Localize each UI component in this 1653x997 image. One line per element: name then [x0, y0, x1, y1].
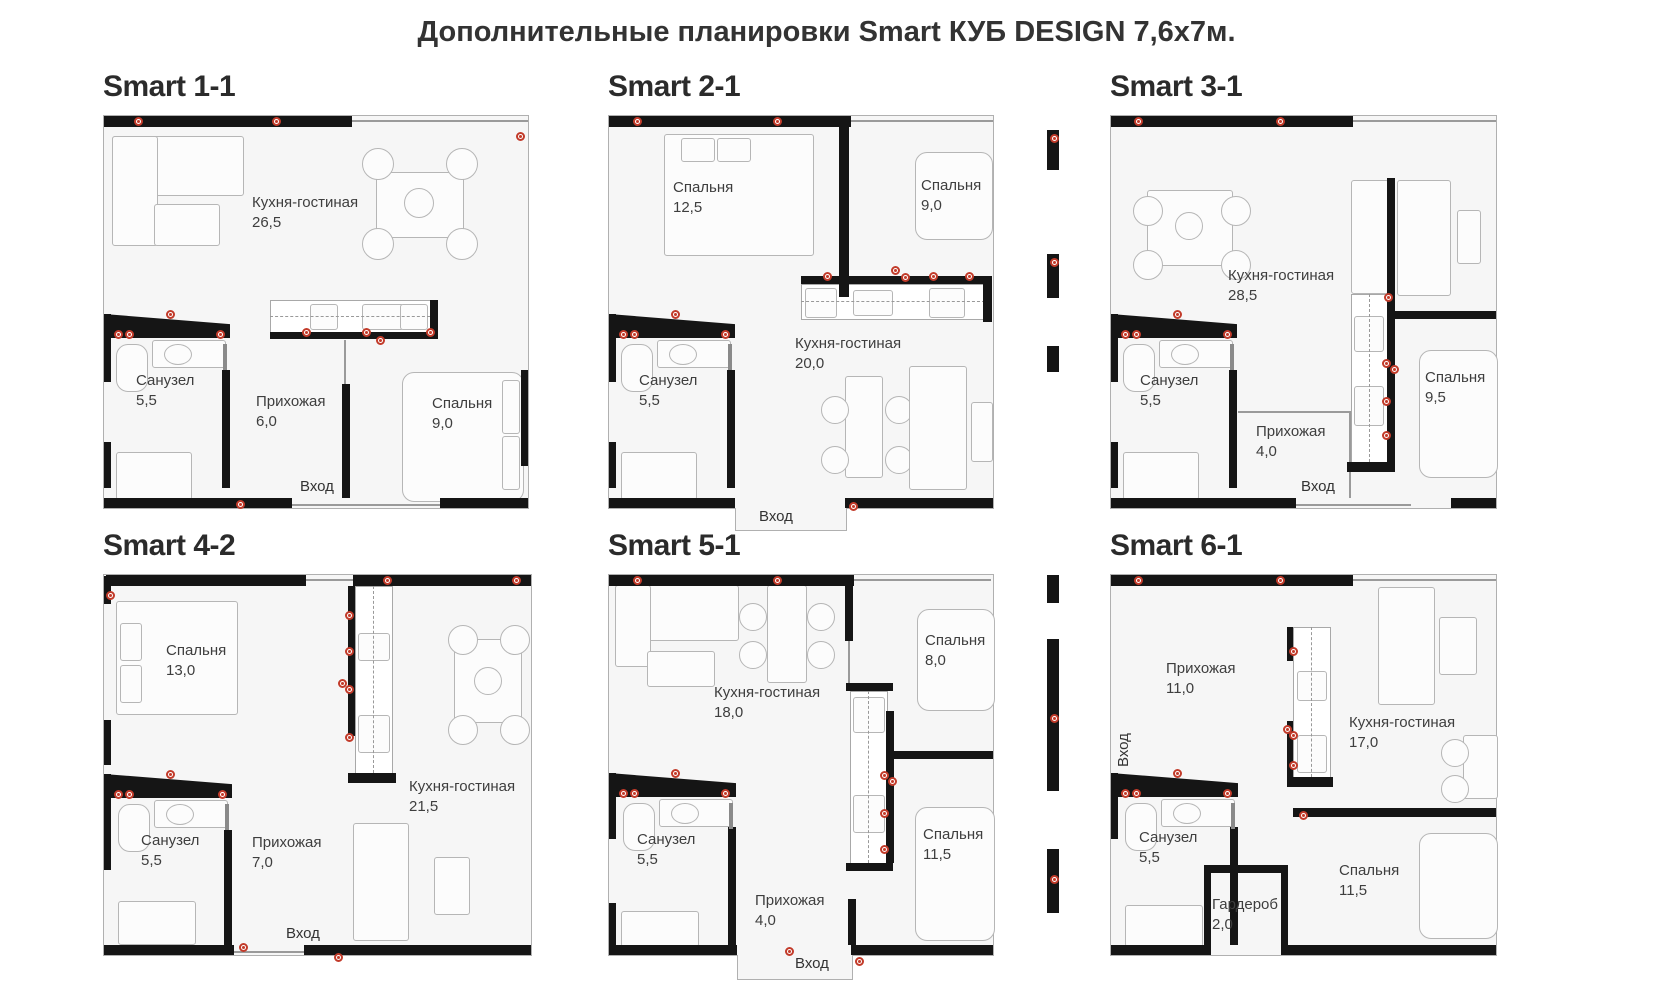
kitchen-sink — [362, 304, 404, 330]
socket-icon — [630, 789, 639, 798]
wall — [1287, 777, 1333, 787]
counter-dash — [801, 301, 985, 302]
socket-icon — [376, 336, 385, 345]
chair — [448, 715, 478, 745]
wall — [609, 773, 616, 839]
floor-plan-smart-4-2: Спальня 13,0 Кухня-гостиная 21,5 Санузел… — [103, 574, 532, 956]
socket-icon — [849, 502, 858, 511]
socket-icon — [166, 770, 175, 779]
chair — [1221, 196, 1251, 226]
cooktop — [400, 304, 428, 330]
socket-icon — [334, 953, 343, 962]
cooktop — [1297, 735, 1327, 773]
threshold-line — [292, 504, 440, 506]
pillow — [717, 138, 751, 162]
dishwasher — [310, 304, 338, 330]
wall — [104, 498, 292, 508]
chair — [739, 603, 767, 631]
kitchen-sink — [853, 697, 885, 733]
chair — [807, 603, 835, 631]
partition-line — [344, 340, 346, 384]
socket-icon — [633, 117, 642, 126]
socket-icon — [1173, 769, 1182, 778]
dining-table — [845, 376, 883, 478]
plan-title-smart-1-1: Smart 1-1 — [103, 70, 235, 104]
counter-dash — [868, 691, 869, 863]
room-label-bathroom: Санузел 5,5 — [141, 831, 199, 870]
fridge — [805, 288, 837, 318]
socket-icon — [125, 790, 134, 799]
chair — [1133, 250, 1163, 280]
room-area: 11,0 — [1166, 679, 1236, 699]
room-name: Прихожая — [1166, 659, 1236, 679]
socket-icon — [880, 809, 889, 818]
wall — [851, 945, 993, 955]
wall — [846, 863, 893, 871]
chair — [446, 148, 478, 180]
wall — [106, 575, 306, 586]
sofa — [1378, 587, 1435, 705]
entrance-label: Вход — [1301, 478, 1335, 495]
sofa-chaise — [112, 136, 158, 246]
chair — [362, 148, 394, 180]
room-label-bedroom: Спальня 9,5 — [1425, 368, 1485, 407]
entrance-label: Вход — [1115, 719, 1132, 767]
tv-stand — [1439, 617, 1477, 675]
floor-plan-smart-5-1: Кухня-гостиная 18,0 Спальня 8,0 Санузел … — [608, 574, 994, 956]
socket-icon — [114, 790, 123, 799]
dining-table — [767, 585, 807, 683]
room-name: Санузел — [639, 371, 697, 391]
socket-icon — [1276, 576, 1285, 585]
socket-icon — [823, 272, 832, 281]
socket-icon — [671, 310, 680, 319]
socket-icon — [345, 733, 354, 742]
socket-icon — [1390, 365, 1399, 374]
wall — [848, 899, 856, 945]
floor-plan-smart-3-1: Кухня-гостиная 28,5 Санузел 5,5 Прихожая… — [1110, 115, 1497, 509]
chair — [1133, 196, 1163, 226]
room-label-hallway: Прихожая 7,0 — [252, 833, 322, 872]
socket-icon — [888, 777, 897, 786]
basin — [1173, 803, 1201, 824]
room-area: 4,0 — [1256, 442, 1326, 462]
socket-icon — [965, 272, 974, 281]
socket-icon — [721, 789, 730, 798]
socket-icon — [671, 769, 680, 778]
room-name: Санузел — [141, 831, 199, 851]
washing-machine — [621, 452, 697, 500]
washing-machine — [621, 911, 699, 947]
socket-icon — [1050, 134, 1059, 143]
room-name: Кухня-гостиная — [1228, 266, 1334, 286]
room-name: Кухня-гостиная — [1349, 713, 1455, 733]
plate — [404, 188, 434, 218]
room-area: 21,5 — [409, 797, 515, 817]
room-label-bathroom: Санузел 5,5 — [1139, 828, 1197, 867]
wall — [1111, 498, 1296, 508]
socket-icon — [1134, 117, 1143, 126]
socket-icon — [362, 328, 371, 337]
socket-icon — [1132, 330, 1141, 339]
wall — [609, 945, 737, 955]
bed — [1419, 833, 1498, 939]
chair — [807, 641, 835, 669]
chair — [362, 228, 394, 260]
room-label-bedroom: Спальня 11,5 — [1339, 861, 1399, 900]
wall — [440, 498, 528, 508]
wall — [1229, 370, 1237, 488]
socket-icon — [1289, 731, 1298, 740]
entrance-label: Вход — [286, 925, 320, 942]
socket-icon — [272, 117, 281, 126]
socket-icon — [929, 272, 938, 281]
pillow — [502, 436, 520, 490]
room-area: 11,5 — [923, 845, 983, 865]
room-area: 17,0 — [1349, 733, 1455, 753]
room-label-kitchen-living: Кухня-гостиная 20,0 — [795, 334, 901, 373]
wall — [609, 314, 616, 382]
kitchen-sink — [1297, 671, 1327, 701]
socket-icon — [345, 611, 354, 620]
page-title: Дополнительные планировки Smart КУБ DESI… — [0, 16, 1653, 49]
room-label-bathroom: Санузел 5,5 — [136, 371, 194, 410]
door-leaf — [225, 804, 229, 830]
wall — [1347, 462, 1395, 472]
wall — [348, 773, 396, 783]
room-name: Спальня — [923, 825, 983, 845]
room-area: 26,5 — [252, 213, 358, 233]
chair — [500, 715, 530, 745]
socket-icon — [516, 132, 525, 141]
wall — [728, 827, 736, 945]
socket-icon — [1050, 258, 1059, 267]
room-area: 6,0 — [256, 412, 326, 432]
socket-icon — [633, 576, 642, 585]
room-name: Прихожая — [1256, 422, 1326, 442]
wall — [886, 751, 993, 759]
socket-icon — [345, 685, 354, 694]
room-label-bedroom: Спальня 8,0 — [925, 631, 985, 670]
wall — [846, 683, 893, 691]
chair — [821, 396, 849, 424]
door-leaf — [1231, 803, 1235, 829]
socket-icon — [1121, 789, 1130, 798]
room-label-bedroom: Спальня 13,0 — [166, 641, 226, 680]
pillow — [120, 665, 142, 703]
socket-icon — [619, 330, 628, 339]
room-area: 13,0 — [166, 661, 226, 681]
window-line — [1353, 120, 1496, 122]
chair — [448, 625, 478, 655]
room-name: Санузел — [1140, 371, 1198, 391]
room-name: Прихожая — [755, 891, 825, 911]
chair — [500, 625, 530, 655]
socket-icon — [236, 500, 245, 509]
room-area: 12,5 — [673, 198, 733, 218]
basin — [164, 344, 192, 365]
room-label-bathroom: Санузел 5,5 — [1140, 371, 1198, 410]
room-area: 5,5 — [1139, 848, 1197, 868]
room-label-bathroom: Санузел 5,5 — [637, 830, 695, 869]
coffee-table — [647, 651, 715, 687]
room-label-kitchen-living: Кухня-гостиная 26,5 — [252, 193, 358, 232]
entrance-label: Вход — [300, 478, 334, 495]
entrance-label: Вход — [759, 508, 793, 525]
room-name: Спальня — [166, 641, 226, 661]
room-name: Спальня — [432, 394, 492, 414]
room-name: Кухня-гостиная — [795, 334, 901, 354]
socket-icon — [1223, 789, 1232, 798]
door-leaf — [1230, 344, 1234, 370]
room-label-bathroom: Санузел 5,5 — [639, 371, 697, 410]
room-label-kitchen-living: Кухня-гостиная 18,0 — [714, 683, 820, 722]
room-label-bedroom: Спальня 12,5 — [673, 178, 733, 217]
room-area: 9,5 — [1425, 388, 1485, 408]
socket-icon — [1050, 875, 1059, 884]
wall — [845, 498, 993, 508]
room-area: 8,0 — [925, 651, 985, 671]
wall — [609, 498, 735, 508]
socket-icon — [512, 576, 521, 585]
room-area: 5,5 — [639, 391, 697, 411]
floor-plan-smart-6-1: Прихожая 11,0 Кухня-гостиная 17,0 Санузе… — [1110, 574, 1497, 956]
sofa — [909, 366, 967, 490]
wall — [1387, 178, 1395, 463]
wall — [104, 442, 111, 488]
socket-icon — [1132, 789, 1141, 798]
window-line — [1353, 579, 1496, 581]
wall — [1111, 773, 1118, 839]
room-name: Спальня — [921, 176, 981, 196]
room-name: Спальня — [673, 178, 733, 198]
counter-dash — [1311, 627, 1312, 777]
sofa — [353, 823, 409, 941]
tall-cabinet — [1351, 180, 1389, 294]
washing-machine — [1123, 452, 1199, 500]
plate — [474, 667, 502, 695]
socket-icon — [721, 330, 730, 339]
room-area: 11,5 — [1339, 881, 1399, 901]
socket-icon — [1299, 811, 1308, 820]
room-name: Кухня-гостиная — [252, 193, 358, 213]
washing-machine — [118, 901, 196, 945]
kitchen-sink — [853, 290, 893, 316]
washing-machine — [116, 452, 192, 500]
counter-dash — [1369, 294, 1370, 462]
socket-icon — [106, 591, 115, 600]
room-area: 5,5 — [637, 850, 695, 870]
plan-title-smart-3-1: Smart 3-1 — [1110, 70, 1242, 104]
wall — [348, 586, 355, 736]
wall — [1047, 575, 1059, 603]
room-area: 5,5 — [1140, 391, 1198, 411]
socket-icon — [1276, 117, 1285, 126]
wall — [1281, 865, 1288, 955]
socket-icon — [166, 310, 175, 319]
partition-line — [1238, 411, 1351, 413]
plan-title-smart-5-1: Smart 5-1 — [608, 529, 740, 563]
socket-icon — [1173, 310, 1182, 319]
room-label-hallway: Прихожая 4,0 — [755, 891, 825, 930]
cooktop — [358, 715, 390, 753]
socket-icon — [383, 576, 392, 585]
room-label-hallway: Прихожая 4,0 — [1256, 422, 1326, 461]
room-label-wardrobe: Гардероб 2,0 — [1212, 895, 1278, 934]
window-line — [306, 579, 353, 581]
room-area: 18,0 — [714, 703, 820, 723]
room-area: 2,0 — [1212, 915, 1278, 935]
room-label-kitchen-living: Кухня-гостиная 28,5 — [1228, 266, 1334, 305]
wall — [1204, 865, 1288, 873]
wall — [1111, 314, 1118, 382]
socket-icon — [1289, 647, 1298, 656]
basin — [166, 804, 194, 825]
wall — [886, 711, 894, 863]
room-label-hallway: Прихожая 6,0 — [256, 392, 326, 431]
floor-plan-smart-1-1: Кухня-гостиная 26,5 Санузел 5,5 Прихожая… — [103, 115, 529, 509]
room-name: Спальня — [925, 631, 985, 651]
entrance-label: Вход — [795, 955, 829, 972]
room-label-bedroom: Спальня 9,0 — [432, 394, 492, 433]
washing-machine — [1125, 905, 1203, 947]
socket-icon — [1134, 576, 1143, 585]
wall — [1047, 346, 1059, 372]
socket-icon — [302, 328, 311, 337]
room-area: 9,0 — [432, 414, 492, 434]
room-name: Спальня — [1425, 368, 1485, 388]
cooktop — [929, 288, 965, 318]
room-name: Прихожая — [252, 833, 322, 853]
room-name: Спальня — [1339, 861, 1399, 881]
wall — [1451, 498, 1496, 508]
wall — [1293, 808, 1496, 817]
side-table — [971, 402, 993, 462]
room-area: 4,0 — [755, 911, 825, 931]
wall — [727, 370, 735, 488]
chair — [739, 641, 767, 669]
socket-icon — [1289, 761, 1298, 770]
kitchen-sink — [358, 633, 390, 661]
basin — [669, 344, 697, 365]
wall — [609, 903, 616, 945]
wall — [342, 384, 350, 498]
basin — [1171, 344, 1199, 365]
room-label-bedroom: Спальня 11,5 — [923, 825, 983, 864]
wall — [1395, 311, 1496, 319]
room-name: Гардероб — [1212, 895, 1278, 915]
counter-dash — [373, 586, 374, 773]
wall — [983, 276, 992, 322]
wall — [1287, 945, 1496, 955]
socket-icon — [216, 330, 225, 339]
wall — [1204, 865, 1211, 955]
wall — [1111, 116, 1353, 127]
socket-icon — [891, 266, 900, 275]
room-name: Санузел — [1139, 828, 1197, 848]
plate — [1175, 212, 1203, 240]
counter-dash — [270, 316, 430, 317]
coffee-table — [154, 204, 220, 246]
room-label-kitchen-living: Кухня-гостиная 21,5 — [409, 777, 515, 816]
room-area: 5,5 — [141, 851, 199, 871]
pillow — [681, 138, 715, 162]
socket-icon — [1382, 431, 1391, 440]
room-area: 7,0 — [252, 853, 322, 873]
wall — [224, 830, 232, 945]
plan-title-smart-2-1: Smart 2-1 — [608, 70, 740, 104]
door-leaf — [729, 803, 733, 829]
room-label-bedroom: Спальня 9,0 — [921, 176, 981, 215]
wall — [222, 370, 230, 488]
wall — [1111, 575, 1353, 586]
wall — [609, 575, 854, 586]
room-area: 9,0 — [921, 196, 981, 216]
room-label-kitchen-living: Кухня-гостиная 17,0 — [1349, 713, 1455, 752]
sofa-chaise — [615, 585, 651, 667]
socket-icon — [773, 576, 782, 585]
window-line — [851, 120, 993, 122]
door-leaf — [223, 344, 227, 370]
socket-icon — [426, 328, 435, 337]
room-label-hallway: Прихожая 11,0 — [1166, 659, 1236, 698]
plan-title-smart-6-1: Smart 6-1 — [1110, 529, 1242, 563]
socket-icon — [125, 330, 134, 339]
socket-icon — [1050, 714, 1059, 723]
socket-icon — [1121, 330, 1130, 339]
socket-icon — [901, 273, 910, 282]
pillow — [502, 380, 520, 434]
socket-icon — [785, 947, 794, 956]
room-name: Санузел — [637, 830, 695, 850]
window-line — [854, 579, 991, 581]
socket-icon — [345, 647, 354, 656]
socket-icon — [773, 117, 782, 126]
door-leaf — [728, 344, 732, 370]
socket-icon — [630, 330, 639, 339]
partition-line — [848, 641, 850, 689]
socket-icon — [218, 790, 227, 799]
wall — [1111, 945, 1206, 955]
room-name: Санузел — [136, 371, 194, 391]
wall — [270, 332, 438, 339]
wall — [521, 370, 528, 466]
floor-plan-smart-2-1: Спальня 12,5 Спальня 9,0 Кухня-гостиная … — [608, 115, 994, 509]
side-table — [434, 857, 470, 915]
socket-icon — [1382, 397, 1391, 406]
socket-icon — [880, 845, 889, 854]
wall — [104, 314, 111, 382]
room-name: Кухня-гостиная — [714, 683, 820, 703]
chair — [446, 228, 478, 260]
wall — [839, 127, 849, 297]
basin — [671, 803, 699, 824]
partition-line — [1349, 413, 1351, 498]
socket-icon — [855, 957, 864, 966]
socket-icon — [619, 789, 628, 798]
chair — [1441, 775, 1469, 803]
room-name: Кухня-гостиная — [409, 777, 515, 797]
wall — [845, 583, 853, 641]
socket-icon — [1223, 330, 1232, 339]
threshold-line — [1296, 504, 1411, 506]
room-area: 28,5 — [1228, 286, 1334, 306]
socket-icon — [239, 943, 248, 952]
pillow — [120, 623, 142, 661]
wall — [353, 575, 531, 586]
room-name: Прихожая — [256, 392, 326, 412]
plan-title-smart-4-2: Smart 4-2 — [103, 529, 235, 563]
